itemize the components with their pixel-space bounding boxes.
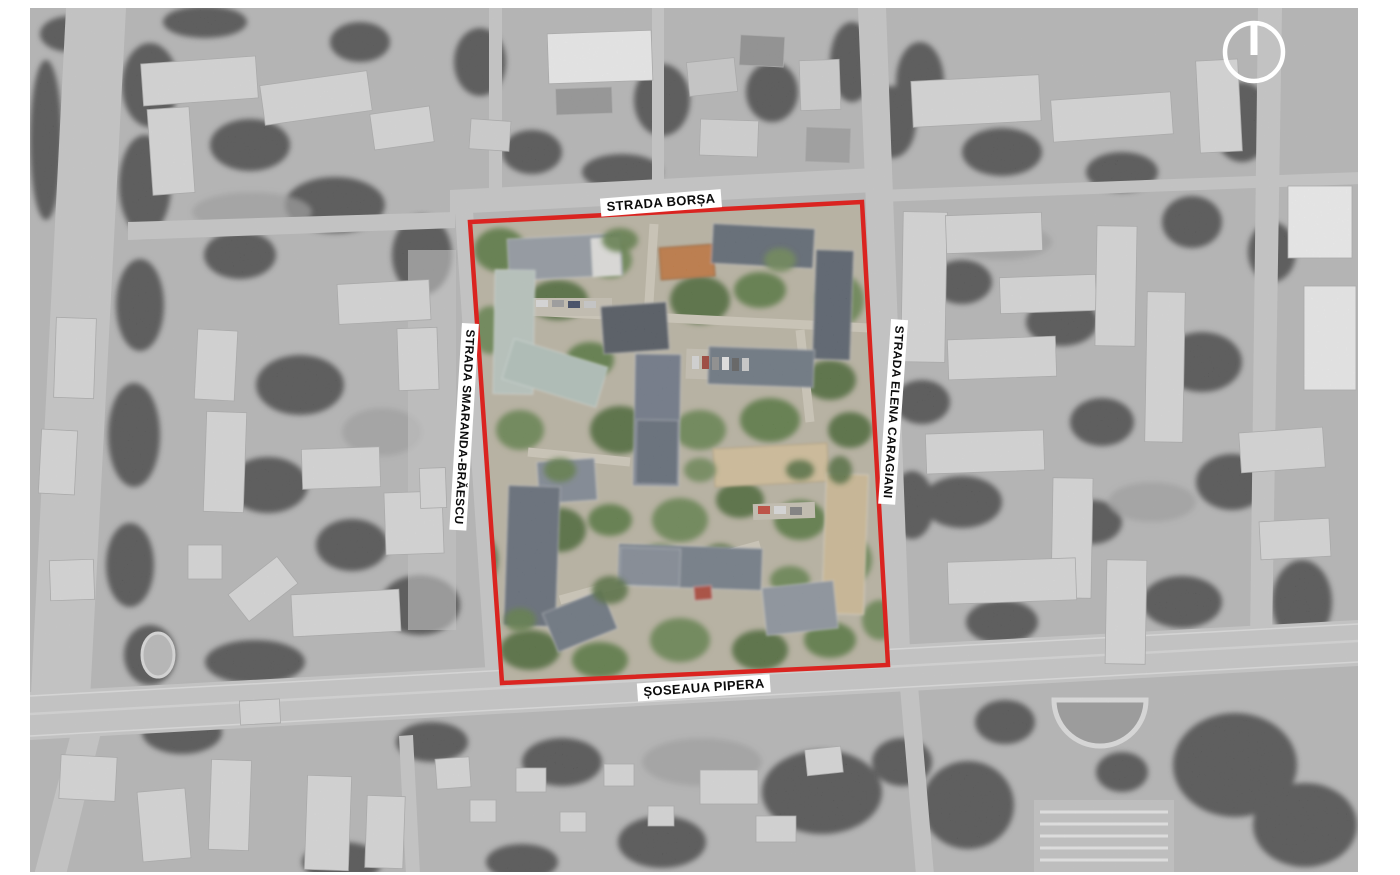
satellite-map-image <box>0 0 1400 875</box>
aerial-site-plan-page: STRADA BORȘA STRADA SMARANDA-BRĂESCU STR… <box>0 0 1400 875</box>
satellite-imagery <box>30 6 1360 875</box>
photo-grain-overlay <box>30 8 1358 872</box>
